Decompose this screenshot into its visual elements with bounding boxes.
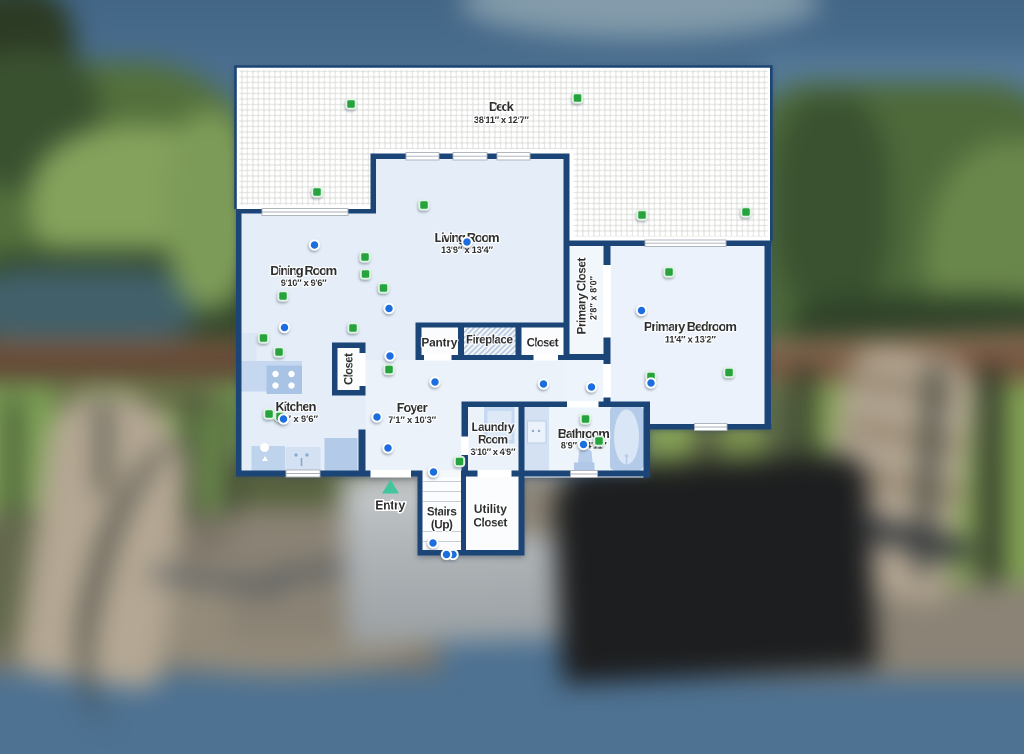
svg-text:Closet: Closet (527, 335, 559, 349)
svg-text:Fireplace: Fireplace (466, 333, 513, 347)
svg-text:Closet: Closet (342, 353, 356, 385)
svg-text:7′1″ x 10′3″: 7′1″ x 10′3″ (388, 415, 436, 426)
svg-text:Foyer: Foyer (397, 400, 428, 415)
svg-text:2′8″ x 8′0″: 2′8″ x 8′0″ (589, 275, 599, 320)
svg-text:(Up): (Up) (431, 518, 453, 532)
svg-text:11′4″ x 13′2″: 11′4″ x 13′2″ (665, 335, 716, 346)
svg-text:Dining Room: Dining Room (270, 263, 337, 278)
svg-text:Closet: Closet (473, 516, 507, 530)
svg-text:Entry: Entry (375, 498, 405, 512)
svg-text:Room: Room (478, 433, 508, 447)
svg-text:Primary Bedroom: Primary Bedroom (644, 319, 737, 334)
svg-text:38′11″ x 12′7″: 38′11″ x 12′7″ (474, 115, 529, 126)
svg-text:Stairs: Stairs (427, 505, 457, 519)
svg-text:Primary Closet: Primary Closet (575, 258, 589, 335)
svg-text:9′10″ x 9′6″: 9′10″ x 9′6″ (281, 278, 327, 289)
svg-text:Pantry: Pantry (421, 335, 457, 349)
svg-text:Deck: Deck (489, 99, 515, 114)
svg-text:Utility: Utility (474, 502, 507, 516)
svg-text:3′10″ x 4′9″: 3′10″ x 4′9″ (471, 447, 516, 458)
